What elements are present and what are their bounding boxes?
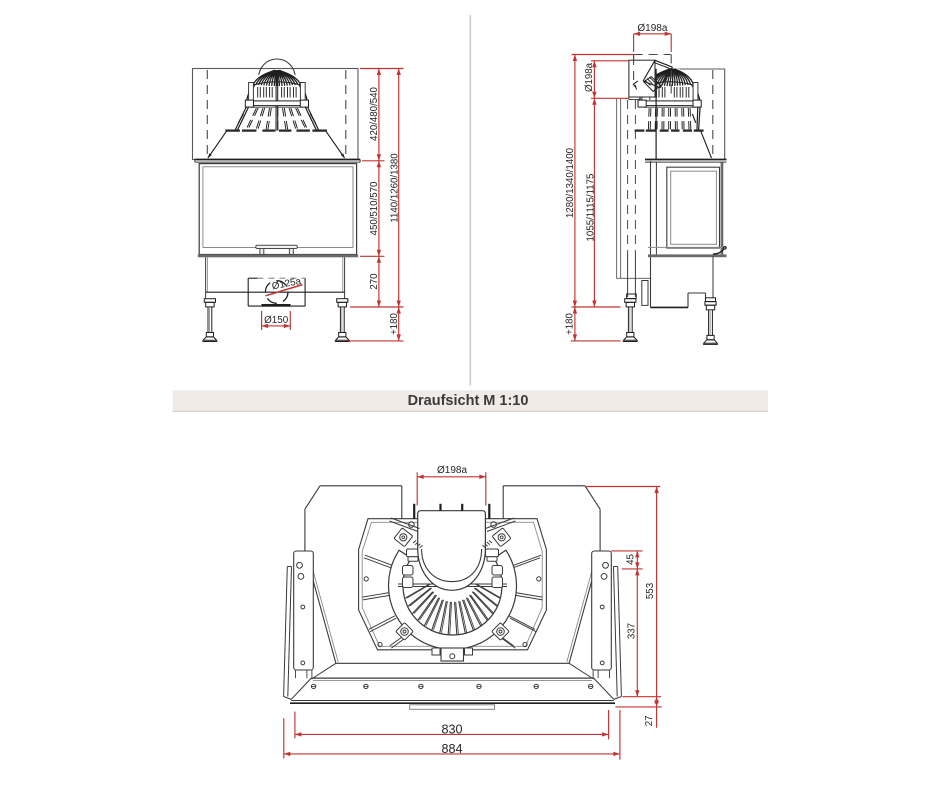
svg-text:Ø150: Ø150 [264, 315, 289, 326]
svg-text:884: 884 [441, 742, 462, 756]
svg-text:1055/1115/1175: 1055/1115/1175 [586, 174, 597, 242]
svg-text:45: 45 [625, 554, 636, 565]
svg-text:1140/1260/1380: 1140/1260/1380 [389, 153, 400, 223]
svg-text:420/480/540: 420/480/540 [369, 86, 380, 140]
svg-text:337: 337 [627, 623, 638, 639]
svg-text:1280/1340/1400: 1280/1340/1400 [565, 147, 576, 218]
svg-text:27: 27 [644, 716, 655, 727]
svg-text:Draufsicht M 1:10: Draufsicht M 1:10 [408, 393, 529, 409]
svg-text:+180: +180 [389, 312, 400, 334]
svg-text:830: 830 [441, 722, 462, 736]
svg-text:553: 553 [645, 583, 656, 599]
svg-text:270: 270 [369, 273, 380, 290]
svg-text:Ø198a: Ø198a [437, 465, 467, 476]
svg-text:Ø198a: Ø198a [637, 23, 667, 34]
svg-text:+180: +180 [565, 312, 576, 334]
svg-text:Ø198a: Ø198a [584, 62, 595, 92]
svg-text:450/510/570: 450/510/570 [369, 181, 380, 235]
